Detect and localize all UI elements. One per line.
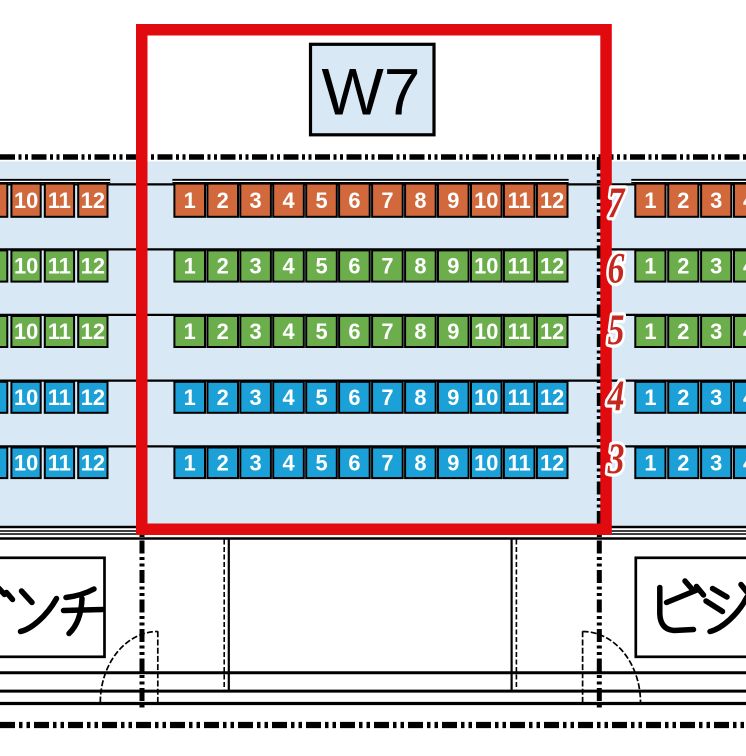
svg-text:11: 11 <box>48 385 71 410</box>
svg-text:5: 5 <box>315 385 327 410</box>
svg-text:1: 1 <box>644 385 656 410</box>
svg-text:2: 2 <box>677 254 689 279</box>
svg-text:8: 8 <box>414 188 426 213</box>
svg-text:5: 5 <box>608 307 625 354</box>
svg-text:6: 6 <box>348 319 360 344</box>
svg-text:4: 4 <box>283 451 295 476</box>
svg-text:8: 8 <box>414 385 426 410</box>
svg-text:8: 8 <box>414 254 426 279</box>
svg-text:7: 7 <box>381 188 393 213</box>
svg-text:3: 3 <box>250 254 262 279</box>
svg-text:10: 10 <box>14 254 38 279</box>
svg-text:11: 11 <box>48 188 71 213</box>
svg-text:2: 2 <box>217 451 229 476</box>
svg-text:4: 4 <box>283 319 295 344</box>
svg-text:1: 1 <box>644 188 656 213</box>
svg-text:2: 2 <box>217 254 229 279</box>
svg-text:7: 7 <box>381 319 393 344</box>
svg-text:10: 10 <box>474 254 498 279</box>
svg-text:11: 11 <box>508 385 531 410</box>
svg-text:6: 6 <box>608 246 625 293</box>
svg-text:6: 6 <box>348 254 360 279</box>
svg-text:12: 12 <box>540 385 564 410</box>
svg-text:3: 3 <box>250 451 262 476</box>
svg-text:9: 9 <box>447 188 459 213</box>
svg-text:3: 3 <box>710 188 722 213</box>
svg-text:10: 10 <box>474 451 498 476</box>
svg-text:11: 11 <box>48 451 71 476</box>
svg-text:3: 3 <box>710 451 722 476</box>
svg-text:1: 1 <box>644 254 656 279</box>
svg-text:2: 2 <box>217 188 229 213</box>
svg-text:12: 12 <box>81 451 105 476</box>
svg-text:4: 4 <box>607 373 625 420</box>
svg-text:10: 10 <box>474 319 498 344</box>
svg-text:2: 2 <box>677 188 689 213</box>
svg-text:12: 12 <box>540 451 564 476</box>
svg-text:11: 11 <box>48 319 71 344</box>
svg-text:11: 11 <box>508 254 531 279</box>
svg-text:11: 11 <box>508 451 531 476</box>
svg-text:10: 10 <box>14 385 38 410</box>
svg-text:10: 10 <box>14 319 38 344</box>
svg-text:8: 8 <box>414 319 426 344</box>
svg-text:12: 12 <box>81 319 105 344</box>
svg-text:4: 4 <box>283 254 295 279</box>
svg-text:12: 12 <box>81 385 105 410</box>
svg-text:9: 9 <box>447 385 459 410</box>
svg-text:10: 10 <box>474 385 498 410</box>
svg-text:6: 6 <box>348 188 360 213</box>
svg-text:2: 2 <box>677 451 689 476</box>
svg-text:4: 4 <box>283 385 295 410</box>
svg-text:1: 1 <box>184 319 196 344</box>
svg-text:12: 12 <box>81 254 105 279</box>
svg-text:8: 8 <box>414 451 426 476</box>
svg-text:11: 11 <box>508 319 531 344</box>
svg-text:2: 2 <box>677 319 689 344</box>
svg-text:1: 1 <box>644 319 656 344</box>
svg-text:9: 9 <box>447 319 459 344</box>
svg-text:10: 10 <box>14 188 38 213</box>
svg-text:10: 10 <box>474 188 498 213</box>
svg-text:12: 12 <box>540 188 564 213</box>
svg-text:11: 11 <box>48 254 71 279</box>
svg-text:5: 5 <box>315 188 327 213</box>
svg-text:6: 6 <box>348 451 360 476</box>
svg-text:5: 5 <box>315 319 327 344</box>
svg-text:4: 4 <box>283 188 295 213</box>
svg-text:3: 3 <box>710 385 722 410</box>
svg-text:2: 2 <box>217 385 229 410</box>
svg-text:2: 2 <box>217 319 229 344</box>
svg-text:9: 9 <box>447 451 459 476</box>
svg-text:7: 7 <box>381 451 393 476</box>
svg-text:1: 1 <box>184 385 196 410</box>
svg-text:2: 2 <box>677 385 689 410</box>
svg-text:12: 12 <box>540 319 564 344</box>
svg-text:3: 3 <box>250 188 262 213</box>
svg-text:3: 3 <box>250 319 262 344</box>
svg-text:5: 5 <box>315 254 327 279</box>
svg-text:12: 12 <box>540 254 564 279</box>
svg-text:7: 7 <box>608 180 626 227</box>
svg-text:3: 3 <box>710 319 722 344</box>
svg-text:7: 7 <box>381 254 393 279</box>
svg-text:3: 3 <box>607 436 625 483</box>
svg-text:3: 3 <box>710 254 722 279</box>
svg-text:7: 7 <box>381 385 393 410</box>
svg-text:1: 1 <box>184 188 196 213</box>
svg-text:1: 1 <box>184 254 196 279</box>
svg-text:9: 9 <box>447 254 459 279</box>
svg-text:W7: W7 <box>322 55 421 129</box>
svg-text:12: 12 <box>81 188 105 213</box>
svg-text:3: 3 <box>250 385 262 410</box>
svg-text:5: 5 <box>315 451 327 476</box>
svg-text:1: 1 <box>644 451 656 476</box>
svg-text:1: 1 <box>184 451 196 476</box>
svg-text:6: 6 <box>348 385 360 410</box>
svg-text:11: 11 <box>508 188 531 213</box>
svg-text:10: 10 <box>14 451 38 476</box>
